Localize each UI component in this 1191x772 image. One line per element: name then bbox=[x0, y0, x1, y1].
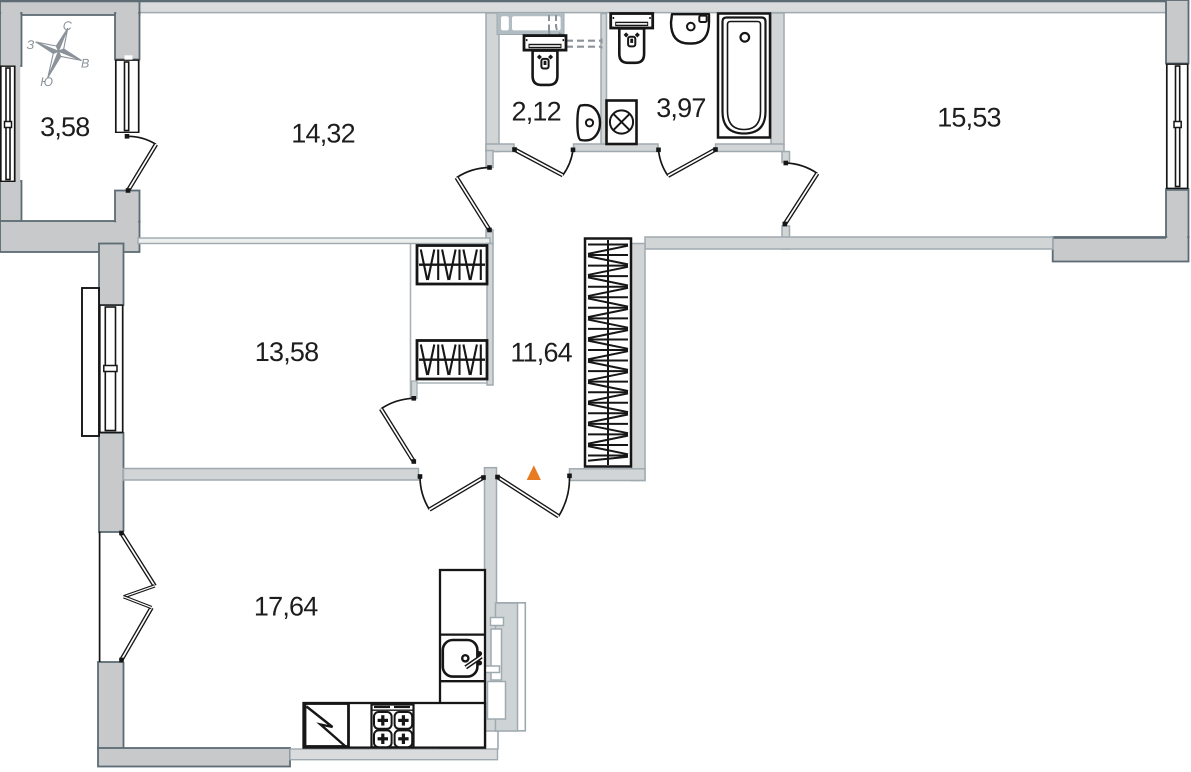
svg-text:17,64: 17,64 bbox=[254, 591, 318, 621]
svg-text:3,58: 3,58 bbox=[40, 112, 89, 142]
svg-text:Ю: Ю bbox=[40, 75, 53, 89]
svg-text:15,53: 15,53 bbox=[937, 102, 1001, 132]
svg-text:З: З bbox=[27, 38, 35, 52]
svg-text:13,58: 13,58 bbox=[255, 337, 319, 367]
svg-text:В: В bbox=[81, 57, 89, 71]
svg-text:14,32: 14,32 bbox=[291, 119, 355, 149]
svg-text:11,64: 11,64 bbox=[510, 338, 572, 368]
svg-text:С: С bbox=[63, 19, 73, 33]
svg-text:2,12: 2,12 bbox=[512, 97, 561, 127]
svg-text:3,97: 3,97 bbox=[656, 93, 705, 123]
